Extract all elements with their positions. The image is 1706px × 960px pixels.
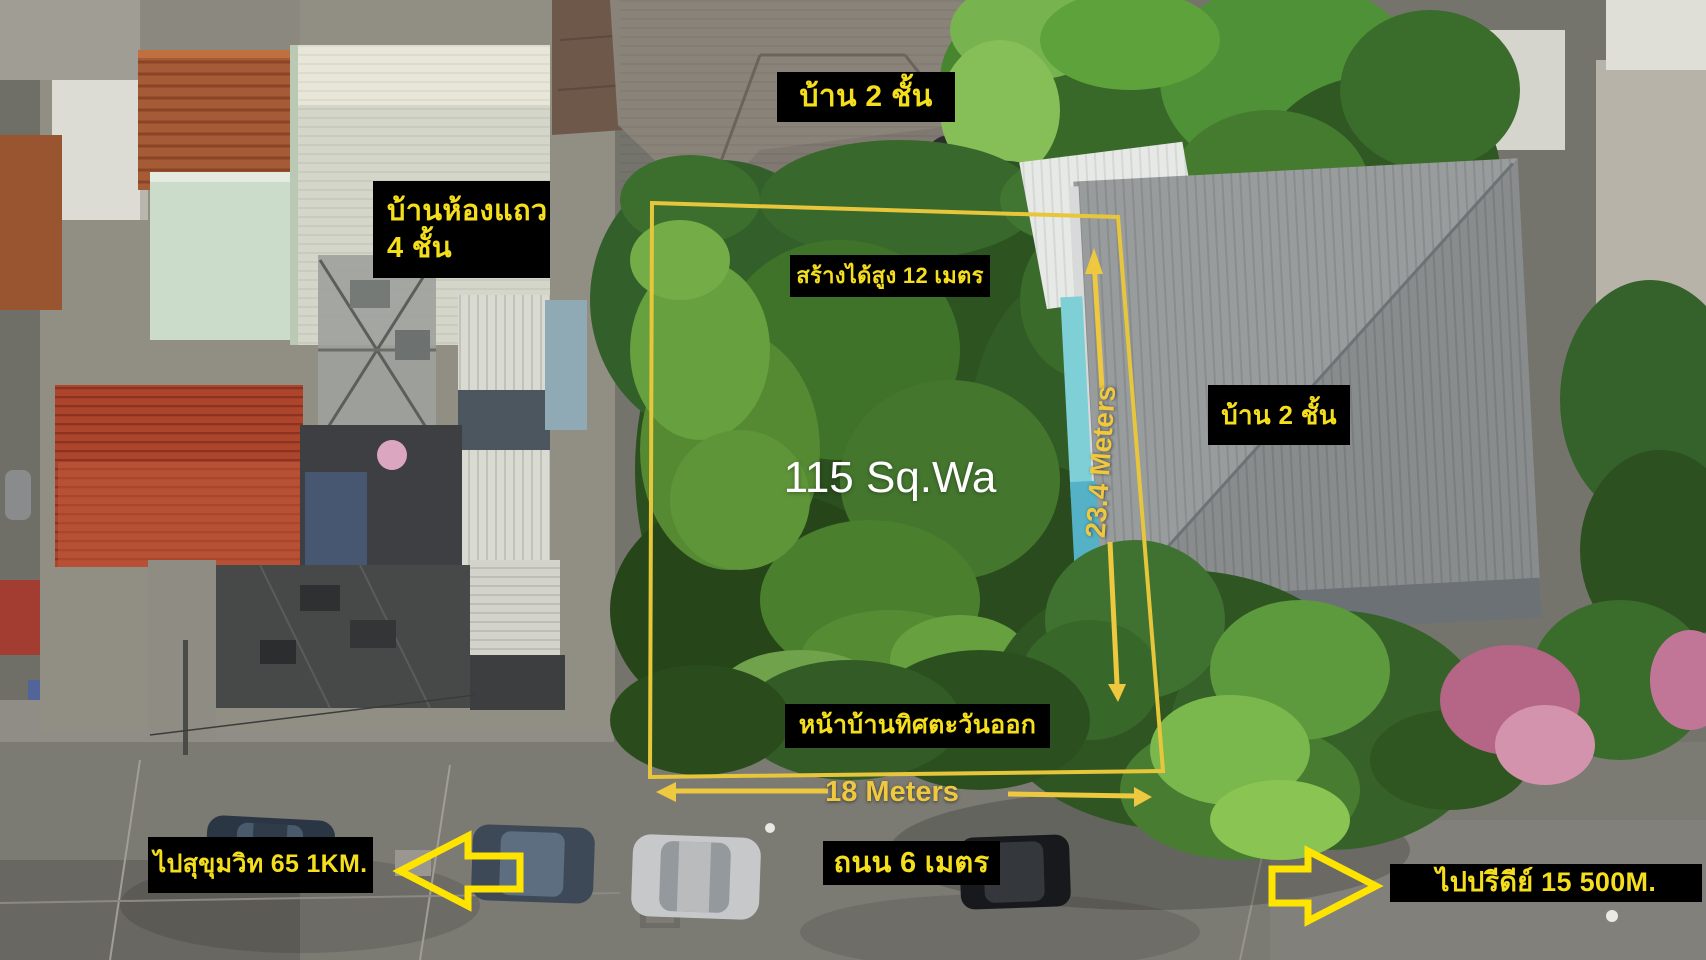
- right-house-label: บ้าน 2 ชั้น: [1208, 385, 1350, 445]
- frontage-label: หน้าบ้านทิศตะวันออก: [785, 704, 1050, 748]
- build-height-label: สร้างได้สูง 12 เมตร: [790, 255, 990, 297]
- sukhumvit-direction-label: ไปสุขุมวิท 65 1KM.: [148, 837, 373, 893]
- rowhouse-label-line2: 4 ชั้น: [387, 230, 452, 266]
- road-label: ถนน 6 เมตร: [823, 841, 1000, 885]
- area-label: 115 Sq.Wa: [775, 452, 1005, 504]
- aerial-photo-stage: บ้าน 2 ชั้น บ้านห้องแถว 4 ชั้น สร้างได้ส…: [0, 0, 1706, 960]
- left-buildings: [0, 0, 615, 755]
- pridi-direction-label: ไปปรีดีย์ 15 500M.: [1390, 864, 1702, 902]
- rowhouse-label: บ้านห้องแถว 4 ชั้น: [373, 181, 550, 278]
- antenna-lattice: [318, 255, 436, 445]
- rowhouse-label-line1: บ้านห้องแถว: [387, 193, 547, 229]
- width-dimension-label: 18 Meters: [822, 776, 962, 809]
- top-house-label: บ้าน 2 ชั้น: [777, 72, 955, 122]
